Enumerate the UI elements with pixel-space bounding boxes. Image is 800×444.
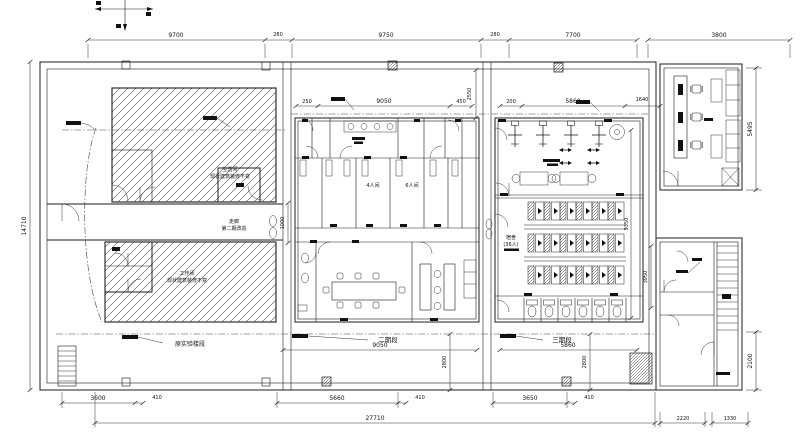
stairs-icon: [717, 246, 738, 330]
dim-410-b: 410: [415, 395, 425, 401]
section-right-label: 三期段: [552, 335, 572, 344]
washroom-sinks: [508, 121, 625, 185]
dim-1000: 1000: [280, 217, 286, 230]
dim-9050-top: 9050: [376, 98, 391, 105]
dim-2550: 2550: [467, 88, 473, 101]
dim-14710: 14710: [21, 216, 28, 235]
dim-280-b: 280: [490, 32, 500, 38]
corridor-name: 走廊: [229, 218, 239, 225]
office-area: [420, 260, 476, 310]
dim-410-c: 410: [584, 395, 594, 401]
dim-3650: 3650: [522, 395, 537, 402]
dim-9750: 9750: [378, 32, 393, 39]
dim-top-row: 9700 280 9750 280 7700 3800: [86, 32, 793, 58]
dim-5660: 5660: [329, 395, 344, 402]
lower-room-note: 现状建筑装修不变: [167, 277, 207, 284]
dim-450: 450: [456, 99, 466, 105]
dim-2220: 2220: [677, 416, 690, 422]
dim-1640: 1640: [636, 97, 649, 103]
dorm-label: 宿舍: [506, 234, 516, 241]
dim-200: 200: [506, 99, 516, 105]
room-6p-label: 6人间: [405, 182, 418, 189]
dim-3800: 3800: [711, 32, 726, 39]
dim-3600: 3600: [90, 395, 105, 402]
dim-7700: 7700: [565, 32, 580, 39]
hatched-block: [630, 353, 652, 384]
dim-bottom-row-1: 3600 410 5660 410 3650 410: [60, 395, 594, 405]
hatched-room-upper: [112, 88, 276, 202]
dim-280-a: 280: [273, 32, 283, 38]
dim-bottom-row-2: 27710 2220 1330: [62, 392, 750, 427]
dim-9700: 9700: [168, 32, 183, 39]
upper-room-name: 生活间: [222, 166, 237, 173]
dim-2800-a: 2800: [442, 356, 448, 369]
corridor-note: 第二期改造: [221, 225, 246, 232]
door-marks-middle: [302, 119, 461, 321]
washstand-counter: [344, 121, 396, 144]
dim-250: 250: [302, 99, 312, 105]
annex-office: [660, 64, 742, 190]
dim-left-vertical: 14710: [21, 60, 32, 392]
meeting-room: [323, 273, 405, 308]
dormitory-beds: [524, 202, 626, 284]
floor-plan-svg: 9700 280 9750 280 7700 3800 250 9050 450…: [0, 0, 800, 444]
toilet-stalls: [495, 296, 643, 322]
wc-room: [298, 253, 309, 311]
lower-room-name: 工作间: [179, 270, 194, 277]
middle-section: 4人间 6人间: [295, 118, 479, 322]
room-4p-label: 4人间: [366, 182, 379, 189]
corridor: [62, 204, 277, 239]
dim-410-a: 410: [152, 395, 162, 401]
dim-2100: 2100: [747, 353, 754, 368]
dim-right-edge: 5495 2100: [746, 66, 762, 392]
dim-5495: 5495: [747, 121, 754, 136]
dim-2800-b: 2800: [582, 356, 588, 369]
floor-plan-canvas: 9700 280 9750 280 7700 3800 250 9050 450…: [0, 0, 800, 444]
dim-upper-mid-row: 250 9050 450 2550: [294, 68, 479, 120]
dorm-count-label: (36人): [503, 242, 518, 248]
orientation-axis-icon: [95, 0, 153, 31]
section-left-label: 原实验楼段: [175, 340, 205, 348]
annex-stairwell: [656, 238, 742, 390]
section-mid-label: 二期段: [378, 335, 398, 344]
upper-room-note: 现状建筑装修不变: [210, 173, 250, 180]
dim-3050: 3050: [643, 271, 649, 284]
dim-27710: 27710: [365, 415, 384, 422]
exterior-stair: [58, 346, 76, 386]
bedroom-beds: [300, 160, 458, 176]
dim-1330: 1330: [724, 416, 737, 422]
dim-9350: 9350: [624, 218, 630, 231]
right-section: 宿舍 (36人): [486, 118, 643, 322]
